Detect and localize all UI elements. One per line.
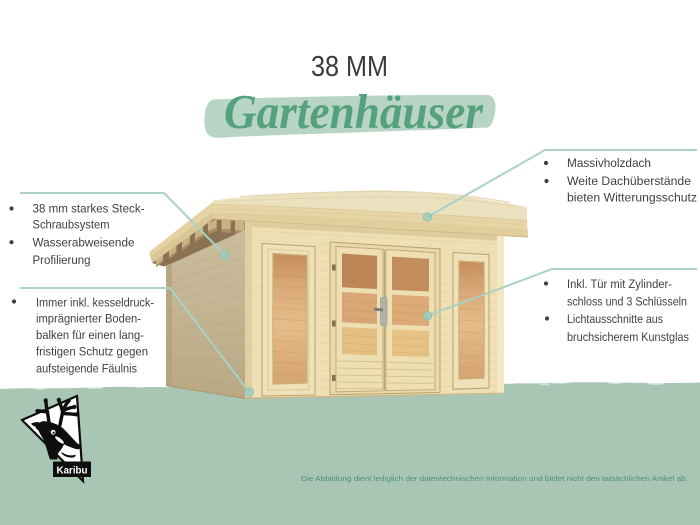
svg-text:Immer inkl. kesseldruck-: Immer inkl. kesseldruck-	[36, 296, 154, 310]
svg-text:schloss und 3 Schlüsseln: schloss und 3 Schlüsseln	[567, 295, 687, 309]
svg-text:Wasserabweisende: Wasserabweisende	[33, 236, 135, 250]
svg-text:Massivholzdach: Massivholzdach	[567, 156, 651, 170]
svg-text:balken für einen lang-: balken für einen lang-	[36, 328, 144, 342]
svg-text:bieten Witterungsschutz: bieten Witterungsschutz	[567, 191, 697, 205]
svg-text:Lichtausschnitte aus: Lichtausschnitte aus	[567, 312, 663, 326]
svg-text:Die Abbildung dient lediglich: Die Abbildung dient lediglich der datent…	[301, 476, 688, 483]
svg-text:Profilierung: Profilierung	[33, 253, 91, 267]
svg-text:Karibu: Karibu	[57, 466, 88, 477]
svg-text:38 mm starkes Steck-: 38 mm starkes Steck-	[33, 202, 145, 216]
svg-text:aufsteigende Fäulnis: aufsteigende Fäulnis	[36, 362, 137, 376]
svg-text:fristigen Schutz gegen: fristigen Schutz gegen	[36, 345, 148, 359]
svg-text:Gartenhäuser: Gartenhäuser	[224, 84, 484, 139]
svg-text:38 MM: 38 MM	[311, 51, 388, 83]
svg-text:Inkl. Tür mit Zylinder-: Inkl. Tür mit Zylinder-	[567, 277, 672, 291]
svg-text:Weite Dachüberstände: Weite Dachüberstände	[567, 174, 691, 188]
svg-text:Schraubsystem: Schraubsystem	[33, 218, 110, 232]
svg-text:imprägnierter Boden-: imprägnierter Boden-	[36, 312, 141, 326]
svg-text:bruchsicherem Kunstglas: bruchsicherem Kunstglas	[567, 330, 689, 344]
